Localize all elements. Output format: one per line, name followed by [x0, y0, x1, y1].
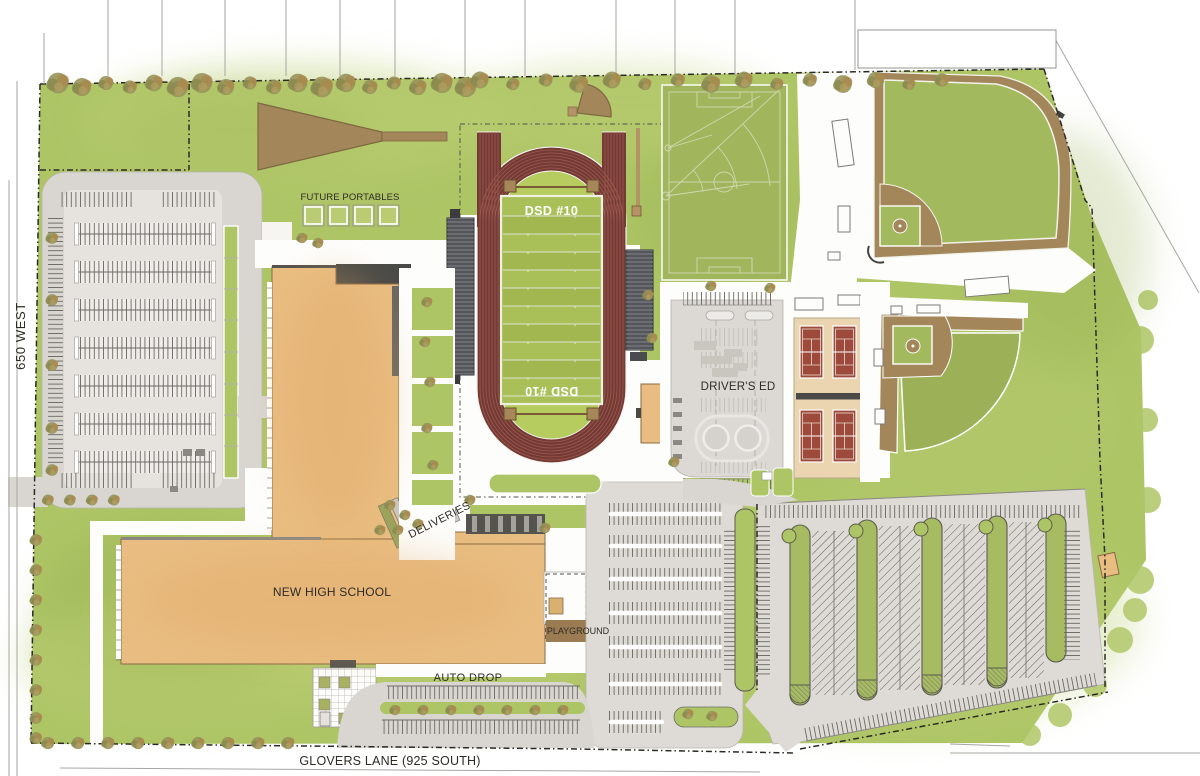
svg-text:650 WEST: 650 WEST	[13, 302, 28, 370]
svg-text:FUTURE PORTABLES: FUTURE PORTABLES	[301, 192, 400, 203]
svg-text:PLAYGROUND: PLAYGROUND	[547, 626, 610, 636]
svg-text:DSD #10: DSD #10	[525, 384, 579, 398]
svg-text:NEW HIGH SCHOOL: NEW HIGH SCHOOL	[273, 585, 391, 599]
svg-text:DRIVER'S ED: DRIVER'S ED	[701, 381, 776, 393]
svg-text:AUTO DROP: AUTO DROP	[434, 672, 503, 684]
svg-text:GLOVERS LANE (925 SOUTH): GLOVERS LANE (925 SOUTH)	[299, 754, 480, 768]
svg-text:DSD #10: DSD #10	[525, 204, 579, 218]
